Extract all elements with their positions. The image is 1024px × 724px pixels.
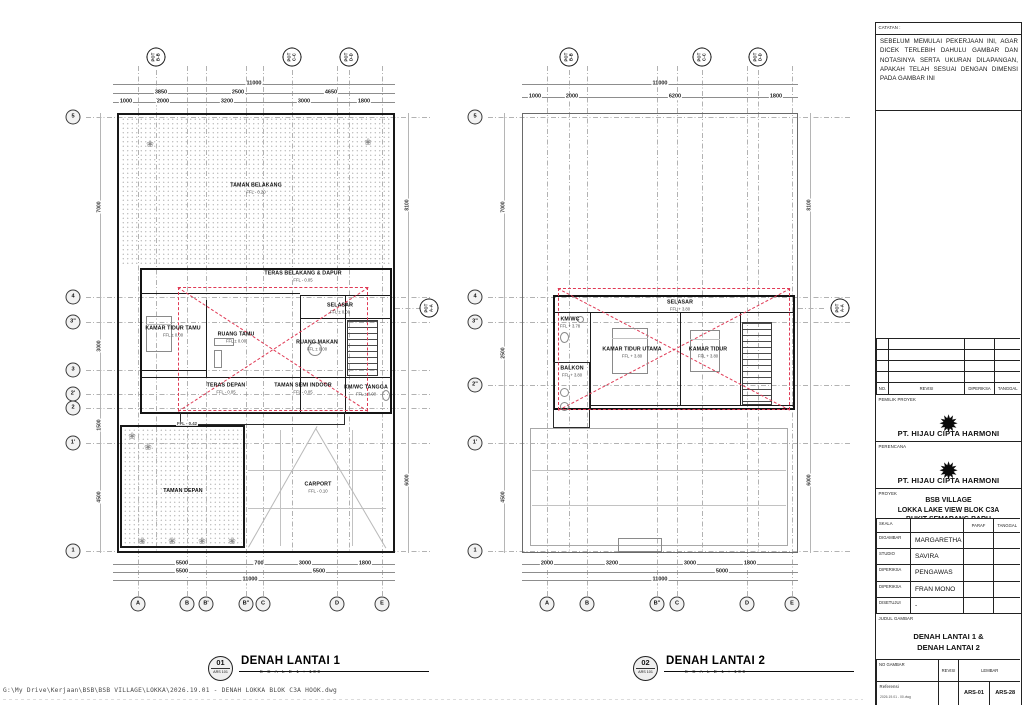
grid-bubble: C [256,597,271,612]
title-block: CATATAN : SEBELUM MEMULAI PEKERJAAN INI,… [875,22,1022,705]
plant-icon: ❀ [228,537,236,547]
rev-cell [888,338,964,349]
divider [876,34,1021,35]
rev-header-revisi: REVISI [888,382,964,394]
section-id: B-B [156,53,161,61]
approval-value: PENGAWAS [910,564,963,580]
rev-cell [876,338,888,349]
level-label: FFL - 0.42 [176,422,198,426]
room-label: SELASARFFL ± 0.00 [327,302,353,314]
grid-bubble: 3" [468,315,483,330]
paraf-cell [963,548,993,564]
dim-value: 1000 [528,94,542,100]
dim-value: 7000 [502,200,507,213]
revisi-cell [938,681,958,705]
approval-label: STUDIO [876,548,910,564]
grid-bubble: B" [650,597,665,612]
planner-name: PT. HIJAU CIPTA HARMONI [876,476,1021,485]
room-label: KM/WC TANGGAFFL ± 0.00 [344,384,388,396]
section-marker: POTA-A [827,295,853,321]
dim-value: 6000 [406,473,411,486]
approval-value: - [910,597,963,613]
judul-line: DENAH LANTAI 2 [876,642,1021,653]
room-label: RUANG TAMUFFL ± 0.00 [218,331,255,343]
dim-value: 4650 [324,90,338,96]
grid-bubble: 2' [66,387,81,402]
grid-bubble: 3 [66,363,81,378]
dim-value: 3000 [683,561,697,567]
dim-value: 1800 [358,561,372,567]
dim-value: 4500 [502,490,507,503]
approval-table: SKALA PARAF TANGGAL DIGAMBAR MARGARETHA … [876,518,1021,613]
rev-cell [964,338,994,349]
rev-header-diperiksa: DIPERIKSA [964,382,994,394]
dim-value: 4500 [98,490,103,503]
carport-line [352,430,353,546]
grid-bubble: A [131,597,146,612]
grid-bubble: 4 [66,290,81,305]
owner-name: PT. HIJAU CIPTA HARMONI [876,429,1021,438]
paraf-cell [963,532,993,548]
detail-bubble: 02ARS 101 [633,656,658,681]
planter-symbol [560,388,569,397]
dim-line [810,113,811,553]
grid-bubble: D [330,597,345,612]
project-label: PROYEK [879,491,898,496]
toilet-symbol [560,332,569,343]
sofa-symbol [214,350,222,368]
revision-table: NO. REVISI DIPERIKSA TANGGAL [876,338,1021,394]
plant-icon: ❀ [198,537,206,547]
dim-line [408,113,409,553]
approval-label: DIPERIKSA [876,564,910,580]
judul-text: DENAH LANTAI 1 & DENAH LANTAI 2 [876,631,1021,653]
canopy-outline [618,538,662,552]
roof-line [532,505,786,506]
referensi-cell: Referensi 2026.19.01 - 00.dwg [876,681,938,705]
dim-value: 6200 [668,94,682,100]
tanggal-cell [993,532,1020,548]
dim-value: 11000 [246,81,263,87]
dim-value: 5000 [715,569,729,575]
paraf-cell [963,564,993,580]
owner-label: PEMILIK PROYEK [879,397,916,402]
lower-roof-outline [530,428,788,546]
planner-label: PERENCANA [879,444,907,449]
drawing-sheet: POTB-B POTC-C POTD-D POTA-A 11000 3850 2… [0,0,1024,724]
room-label: TERAS DEPANFFL - 0.05 [207,382,246,394]
grid-bubble: 1' [468,436,483,451]
dim-value: 3000 [297,99,311,105]
grid-bubble: 5 [468,110,483,125]
judul-label: JUDUL GAMBAR [879,616,914,621]
revisi-label: REVISI [938,659,958,681]
room-label: TAMAN DEPAN [163,488,202,495]
tanggal-cell [993,597,1020,613]
grid-bubble: D [740,597,755,612]
grid-bubble: E [375,597,390,612]
grid-bubble: 4 [468,290,483,305]
section-marker: POTD-D [336,44,362,70]
room-label: KAMAR TIDUR TAMUFFL ± 0.00 [145,325,200,337]
plant-icon: ❀ [144,443,152,453]
carport-line [248,470,386,471]
approval-label: DIGAMBAR [876,532,910,548]
dim-value: 1800 [769,94,783,100]
section-id: C-C [292,53,297,61]
section-marker: POTC-C [689,44,715,70]
dim-line [522,97,798,98]
section-id: A-A [840,304,845,312]
section-marker: POTB-B [556,44,582,70]
sheet-count: ARS-28 [989,681,1020,705]
rev-cell [964,349,994,360]
rev-cell [994,371,1020,382]
judul-line: DENAH LANTAI 1 & [876,631,1021,642]
rev-header-no: NO. [876,382,888,394]
planner-box: PERENCANA ✹ PT. HIJAU CIPTA HARMONI [876,441,1021,488]
tanggal-cell [993,548,1020,564]
paraf-cell [963,581,993,597]
room-label: TAMAN SEMI INDOORFFL - 0.05 [274,382,332,394]
entry-step [180,412,345,425]
approval-label: DISETUJUI [876,597,910,613]
dim-value: 1800 [357,99,371,105]
room-label: TERAS BELAKANG & DAPURFFL - 0.05 [264,270,341,282]
room-label: RUANG MAKANFFL ± 0.00 [296,339,338,351]
paraf-cell [963,597,993,613]
rev-cell [876,360,888,371]
dim-line [504,113,505,553]
section-id: A-A [429,304,434,312]
faint-line [3,699,863,700]
notes-label: CATATAN : [879,25,901,30]
bed-pillow-line [612,338,648,339]
dim-value: 7000 [98,200,103,213]
grid-bubble: 3" [66,315,81,330]
dim-value: 11000 [242,577,259,583]
dim-value: 5500 [175,561,189,567]
plant-icon: ❀ [364,138,372,148]
dim-value: 1000 [119,99,133,105]
room-label: SELASARFFL + 3.80 [667,299,693,311]
paraf-label: PARAF [963,518,993,532]
plan-title: DENAH LANTAI 2S C A L E 1 : 100 [666,655,765,674]
plan-title: DENAH LANTAI 1S C A L E 1 : 100 [241,655,340,674]
rev-cell [888,360,964,371]
rev-cell [888,371,964,382]
referensi-label: Referensi [880,684,899,689]
approval-value: SAVIRA [910,548,963,564]
dim-value: 700 [253,561,264,567]
tanggal-cell [993,564,1020,580]
dim-value: 3850 [154,90,168,96]
section-id: D-D [758,53,763,61]
rev-cell [964,371,994,382]
sheet-info-table: NO GAMBAR REVISI LEMBAR Referensi 2026.1… [876,659,1021,705]
dim-value: 6000 [808,473,813,486]
room-label: TAMAN BELAKANGFFL - 0.20 [230,182,282,194]
dim-line [113,572,395,573]
rev-cell [994,349,1020,360]
planter-symbol [560,402,569,411]
notes-text: SEBELUM MEMULAI PEKERJAAN INI, AGAR DICE… [880,37,1018,83]
grid-bubble: A [540,597,555,612]
section-id: D-D [349,53,354,61]
referensi-value: 2026.19.01 - 00.dwg [880,695,911,699]
section-marker: POTC-C [279,44,305,70]
dim-value: 11000 [652,577,669,583]
section-id: C-C [702,53,707,61]
detail-bubble: 01ARS 101 [208,656,233,681]
grid-bubble: 2" [468,378,483,393]
rev-cell [888,349,964,360]
dim-value: 2000 [156,99,170,105]
judul-box: JUDUL GAMBAR DENAH LANTAI 1 & DENAH LANT… [876,613,1021,659]
project-line: LOKKA LAKE VIEW BLOK C3A [876,506,1021,516]
grid-bubble: B' [199,597,214,612]
tanggal-cell [993,581,1020,597]
grid-bubble: C [670,597,685,612]
bed-pillow-line [690,339,720,340]
notes-box: CATATAN : SEBELUM MEMULAI PEKERJAAN INI,… [876,23,1021,111]
dim-value: 5500 [175,569,189,575]
plant-icon: ❀ [168,537,176,547]
project-box: PROYEK BSB VILLAGE LOKKA LAKE VIEW BLOK … [876,488,1021,518]
dim-value: 1800 [743,561,757,567]
skala-label: SKALA [876,518,910,532]
owner-box: PEMILIK PROYEK ✹ PT. HIJAU CIPTA HARMONI [876,394,1021,441]
dim-value: 3200 [220,99,234,105]
project-line: BSB VILLAGE [876,496,1021,506]
front-garden-area [123,428,242,545]
grid-bubble: B [180,597,195,612]
skala-value-cell [910,518,963,532]
plant-icon: ❀ [146,140,154,150]
lembar-label: LEMBAR [958,659,1020,681]
section-marker: POTB-B [143,44,169,70]
plant-icon: ❀ [138,537,146,547]
room-label: KAMAR TIDURFFL + 3.80 [689,346,727,358]
rev-cell [876,371,888,382]
approval-label: DIPERIKSA [876,581,910,597]
dim-value: 11000 [652,81,669,87]
rev-cell [994,360,1020,371]
grid-bubble: E [785,597,800,612]
grid-bubble: 2 [66,401,81,416]
dim-value: 2000 [540,561,554,567]
dim-value: 2500 [502,346,507,359]
dim-value: 1500 [98,418,103,431]
grid-bubble: B [580,597,595,612]
dim-value: 3000 [298,561,312,567]
room-label: KM/WCFFL + 3.78 [560,316,580,328]
grid-bubble: B" [239,597,254,612]
dim-value: 3000 [98,339,103,352]
roof-line [532,470,786,471]
room-label: CARPORTFFL - 0.10 [305,481,332,493]
grid-bubble: 5 [66,110,81,125]
approval-value: FRAN MONO [910,581,963,597]
section-id: B-B [569,53,574,61]
grid-bubble: 1' [66,436,81,451]
room-label: KAMAR TIDUR UTAMAFFL + 3.80 [602,346,661,358]
dim-value: 2000 [565,94,579,100]
section-marker: POTD-D [745,44,771,70]
dim-value: 8100 [406,198,411,211]
section-marker: POTA-A [416,295,442,321]
rev-cell [876,349,888,360]
room-label: BALKONFFL + 3.80 [560,365,583,377]
grid-bubble: 1 [468,544,483,559]
file-path: G:\My Drive\Kerjaan\BSB\BSB VILLAGE\LOKK… [3,687,337,694]
dim-value: 5500 [312,569,326,575]
dim-line [522,572,798,573]
sheet-number: ARS-01 [958,681,989,705]
rev-cell [994,338,1020,349]
dim-value: 2500 [231,90,245,96]
section-line-AA [798,308,826,309]
approval-value: MARGARETHA [910,532,963,548]
no-gambar-label: NO GAMBAR [876,659,938,681]
rev-cell [964,360,994,371]
plant-icon: ❀ [128,432,136,442]
tanggal-label: TANGGAL [993,518,1020,532]
grid-bubble: 1 [66,544,81,559]
rev-header-tanggal: TANGGAL [994,382,1020,394]
dim-value: 3200 [605,561,619,567]
dim-line [100,113,101,553]
dim-value: 8100 [808,198,813,211]
